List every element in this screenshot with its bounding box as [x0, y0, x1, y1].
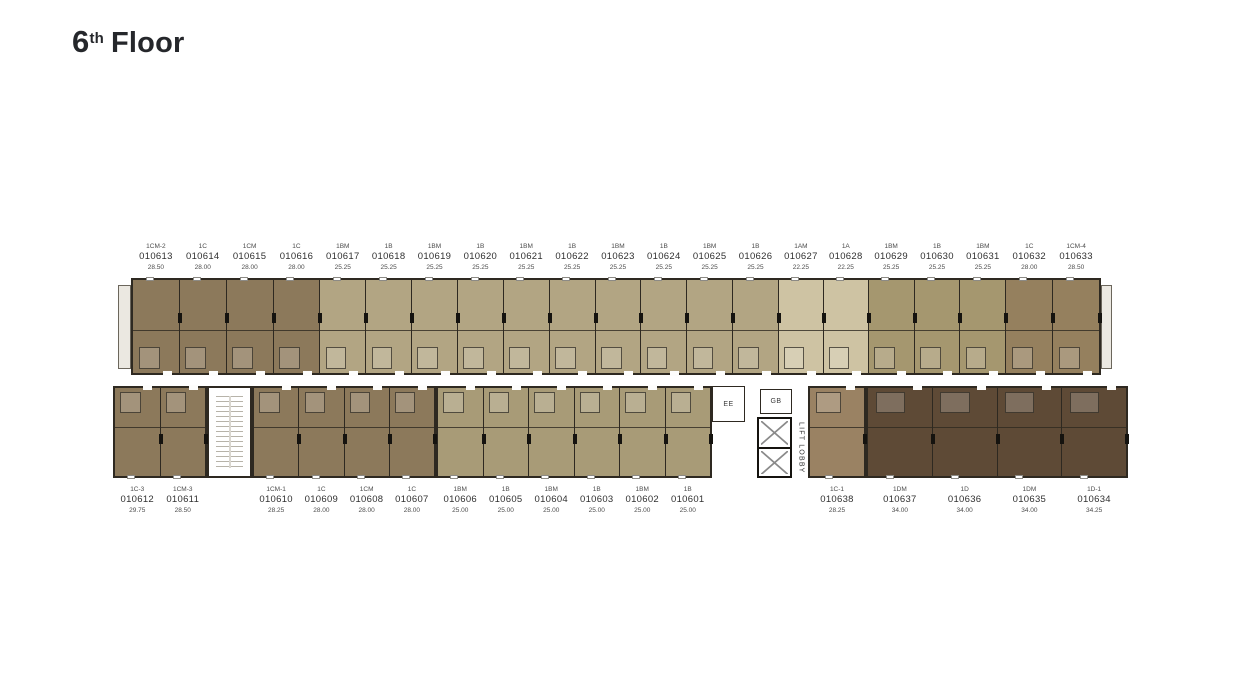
balcony-door-notch	[825, 475, 833, 479]
corridor-door-gap	[648, 385, 657, 390]
unit-bath-block	[372, 347, 393, 369]
corridor-door-gap	[1107, 385, 1116, 390]
corridor-door-gap	[716, 371, 725, 376]
unit-inner-wall	[687, 330, 732, 331]
wall-column-mark	[1004, 313, 1008, 323]
unit-inner-wall	[320, 330, 365, 331]
unit-number: 010616	[280, 251, 314, 263]
unit-bath-block	[580, 392, 600, 413]
unit-number: 010626	[739, 251, 773, 263]
unit-cell-010636: 1D01063634.00	[933, 388, 998, 476]
unit-cell-010607: 1C01060728.00	[390, 388, 434, 476]
unit-inner-wall	[550, 330, 595, 331]
unit-type: 1D	[948, 486, 982, 494]
unit-type: 1B	[464, 243, 498, 251]
unit-type: 1BM	[534, 486, 568, 494]
unit-cell-010602: 1BM01060225.00	[620, 388, 666, 476]
balcony-door-notch	[1080, 475, 1088, 479]
wall-column-mark	[618, 434, 622, 444]
unit-number: 010635	[1013, 494, 1047, 506]
balcony-door-notch	[881, 277, 889, 281]
wall-column-mark	[931, 434, 935, 444]
unit-number: 010636	[948, 494, 982, 506]
wall-column-mark	[527, 434, 531, 444]
unit-label: 1CM-201061328.50	[139, 243, 173, 272]
wall-column-mark	[913, 313, 917, 323]
unit-inner-wall	[458, 330, 503, 331]
unit-area: 34.00	[948, 507, 982, 515]
unit-inner-wall	[620, 427, 665, 428]
unit-cell-010627: 1AM01062722.25	[779, 280, 824, 373]
corridor-door-gap	[943, 371, 952, 376]
unit-number: 010633	[1059, 251, 1093, 263]
unit-label: 1CM01061528.00	[233, 243, 267, 272]
unit-bath-block	[279, 347, 300, 369]
unit-cell-010601: 1B01060125.00	[666, 388, 711, 476]
unit-label: 1CM-101061028.25	[259, 486, 293, 515]
unit-bath-block	[784, 347, 804, 369]
balcony-door-notch	[425, 277, 433, 281]
unit-number: 010611	[166, 494, 199, 506]
unit-type: 1BM	[874, 243, 908, 251]
ee-room-label: EE	[723, 401, 733, 408]
unit-cell-010617: 1BM01061725.25	[320, 280, 366, 373]
unit-bath-block	[1012, 347, 1033, 369]
corridor-door-gap	[762, 371, 771, 376]
unit-cell-010615: 1CM01061528.00	[227, 280, 274, 373]
corridor-door-gap	[1042, 385, 1051, 390]
unit-area: 25.25	[693, 264, 727, 272]
wall-column-mark	[502, 313, 506, 323]
unit-area: 34.25	[1077, 507, 1111, 515]
unit-type: 1BM	[443, 486, 477, 494]
corridor-door-gap	[1083, 371, 1092, 376]
unit-inner-wall	[412, 330, 457, 331]
unit-type: 1AM	[784, 243, 818, 251]
wall-column-mark	[204, 434, 208, 444]
unit-number: 010602	[625, 494, 659, 506]
unit-type: 1BM	[693, 243, 727, 251]
unit-cell-010613: 1CM-201061328.50	[133, 280, 180, 373]
unit-area: 25.25	[464, 264, 498, 272]
corridor-door-gap	[807, 371, 816, 376]
unit-number: 010624	[647, 251, 681, 263]
unit-bath-block	[417, 347, 438, 369]
wall-column-mark	[410, 313, 414, 323]
unit-cell-010616: 1C01061628.00	[274, 280, 321, 373]
corridor-door-gap	[913, 385, 922, 390]
unit-number: 010630	[920, 251, 954, 263]
corridor-door-gap	[395, 371, 404, 376]
corridor-door-gap	[897, 371, 906, 376]
top-wing-right-balcony-edge	[1101, 285, 1112, 369]
lift-shaft-1	[759, 419, 790, 449]
unit-inner-wall	[596, 330, 641, 331]
balcony-door-notch	[450, 475, 458, 479]
unit-cell-010633: 1CM-401063328.50	[1053, 280, 1099, 373]
unit-bath-block	[876, 392, 905, 413]
unit-inner-wall	[666, 427, 711, 428]
balcony-door-notch	[471, 277, 479, 281]
unit-area: 25.25	[372, 264, 406, 272]
unit-inner-wall	[180, 330, 226, 331]
corridor-door-gap	[1036, 371, 1045, 376]
wall-column-mark	[272, 313, 276, 323]
unit-bath-block	[874, 347, 895, 369]
unit-bath-block	[463, 347, 484, 369]
unit-label: 1DM01063534.00	[1013, 486, 1047, 515]
unit-type: 1C	[305, 486, 339, 494]
unit-label: 1A01062822.25	[829, 243, 863, 272]
bottom-wing-mid-west: 1CM-101061028.251C01060928.001CM01060828…	[252, 386, 436, 478]
corridor-door-gap	[557, 385, 566, 390]
unit-cell-010611: 1CM-301061128.50	[161, 388, 206, 476]
unit-inner-wall	[998, 427, 1062, 428]
unit-number: 010605	[489, 494, 523, 506]
corridor-door-gap	[303, 371, 312, 376]
unit-type: 1B	[580, 486, 614, 494]
balcony-door-notch	[127, 475, 135, 479]
unit-bath-block	[601, 347, 622, 369]
unit-cell-010610: 1CM-101061028.25	[254, 388, 299, 476]
unit-number: 010606	[443, 494, 477, 506]
bottom-wing-right: 1DM01063734.001D01063634.001DM01063534.0…	[866, 386, 1128, 478]
top-wing: 1CM-201061328.501C01061428.001CM01061528…	[131, 278, 1101, 375]
unit-cell-010618: 1B01061825.25	[366, 280, 412, 373]
wall-column-mark	[664, 434, 668, 444]
unit-label: 1D01063634.00	[948, 486, 982, 515]
unit-type: 1C-1	[820, 486, 854, 494]
unit-area: 25.25	[920, 264, 954, 272]
wall-column-mark	[996, 434, 1000, 444]
unit-type: 1C-3	[120, 486, 154, 494]
unit-type: 1A	[829, 243, 863, 251]
floor-word: Floor	[111, 27, 185, 59]
unit-number: 010634	[1077, 494, 1111, 506]
unit-bath-block	[940, 392, 969, 413]
unit-label: 1B01063025.25	[920, 243, 954, 272]
corridor-door-gap	[441, 371, 450, 376]
unit-area: 25.25	[509, 264, 543, 272]
corridor-door-gap	[143, 385, 152, 390]
wall-column-mark	[1098, 313, 1102, 323]
unit-cell-010628: 1A01062822.25	[824, 280, 869, 373]
unit-bath-block	[232, 347, 253, 369]
unit-number: 010609	[305, 494, 339, 506]
unit-number: 010617	[326, 251, 360, 263]
balcony-door-notch	[632, 475, 640, 479]
unit-number: 010637	[883, 494, 917, 506]
unit-inner-wall	[133, 330, 179, 331]
unit-type: 1B	[647, 243, 681, 251]
unit-label: 1C01060928.00	[305, 486, 339, 515]
wall-column-mark	[573, 434, 577, 444]
unit-label: 1C01060728.00	[395, 486, 429, 515]
unit-area: 28.50	[1059, 264, 1093, 272]
unit-label: 1BM01062125.25	[509, 243, 543, 272]
wall-column-mark	[297, 434, 301, 444]
unit-bath-block	[350, 392, 370, 413]
unit-type: 1D-1	[1077, 486, 1111, 494]
unit-inner-wall	[733, 330, 778, 331]
unit-type: 1BM	[326, 243, 360, 251]
unit-bath-block	[395, 392, 415, 413]
unit-label: 1BM01062925.25	[874, 243, 908, 272]
unit-number: 010604	[534, 494, 568, 506]
unit-inner-wall	[366, 330, 411, 331]
unit-type: 1CM-2	[139, 243, 173, 251]
unit-inner-wall	[345, 427, 389, 428]
unit-label: 1DM01063734.00	[883, 486, 917, 515]
unit-number: 010619	[418, 251, 452, 263]
unit-area: 25.00	[671, 507, 705, 515]
unit-bath-block	[1070, 392, 1099, 413]
unit-label: 1BM01060225.00	[625, 486, 659, 515]
unit-inner-wall	[504, 330, 549, 331]
corridor-door-gap	[670, 371, 679, 376]
wall-column-mark	[1125, 434, 1129, 444]
balcony-door-notch	[746, 277, 754, 281]
balcony-door-notch	[193, 277, 201, 281]
unit-bath-block	[1059, 347, 1080, 369]
unit-label: 1BM01061725.25	[326, 243, 360, 272]
unit-area: 25.25	[739, 264, 773, 272]
unit-type: 1B	[920, 243, 954, 251]
unit-bath-block	[443, 392, 463, 413]
unit-number: 010603	[580, 494, 614, 506]
unit-bath-block	[509, 347, 530, 369]
unit-type: 1BM	[625, 486, 659, 494]
corridor-door-gap	[846, 385, 855, 390]
unit-number: 010601	[671, 494, 705, 506]
unit-number: 010628	[829, 251, 863, 263]
unit-cell-010638: 1C-101063828.25	[810, 388, 864, 476]
lift-shafts	[757, 417, 792, 478]
unit-label: 1CM-301061128.50	[166, 486, 199, 515]
corridor-door-gap	[466, 385, 475, 390]
balcony-door-notch	[240, 277, 248, 281]
unit-area: 34.00	[883, 507, 917, 515]
balcony-door-notch	[357, 475, 365, 479]
unit-number: 010607	[395, 494, 429, 506]
unit-bath-block	[305, 392, 325, 413]
unit-label: 1B01060325.00	[580, 486, 614, 515]
unit-area: 25.25	[601, 264, 635, 272]
wall-column-mark	[318, 313, 322, 323]
unit-area: 28.00	[186, 264, 220, 272]
balcony-door-notch	[1015, 475, 1023, 479]
unit-number: 010638	[820, 494, 854, 506]
unit-area: 25.25	[874, 264, 908, 272]
unit-area: 28.00	[1012, 264, 1046, 272]
unit-area: 28.50	[166, 507, 199, 515]
wall-column-mark	[594, 313, 598, 323]
balcony-door-notch	[608, 277, 616, 281]
unit-number: 010620	[464, 251, 498, 263]
corridor-door-gap	[624, 371, 633, 376]
unit-cell-010626: 1B01062625.25	[733, 280, 779, 373]
unit-inner-wall	[227, 330, 273, 331]
unit-bath-block	[555, 347, 576, 369]
wall-column-mark	[225, 313, 229, 323]
unit-label: 1C-101063828.25	[820, 486, 854, 515]
unit-cell-010623: 1BM01062325.25	[596, 280, 642, 373]
unit-type: 1CM	[350, 486, 384, 494]
unit-number: 010629	[874, 251, 908, 263]
wall-column-mark	[867, 313, 871, 323]
unit-inner-wall	[161, 427, 206, 428]
unit-cell-010604: 1BM01060425.00	[529, 388, 575, 476]
unit-cell-010619: 1BM01061925.25	[412, 280, 458, 373]
unit-number: 010625	[693, 251, 727, 263]
unit-number: 010615	[233, 251, 267, 263]
unit-area: 25.25	[647, 264, 681, 272]
lift-shaft-x-icon	[761, 421, 788, 445]
unit-bath-block	[966, 347, 987, 369]
unit-number: 010621	[509, 251, 543, 263]
unit-area: 28.00	[395, 507, 429, 515]
balcony-door-notch	[541, 475, 549, 479]
unit-area: 25.25	[418, 264, 452, 272]
gb-room-label: GB	[770, 398, 781, 405]
unit-label: 1B01062425.25	[647, 243, 681, 272]
unit-inner-wall	[484, 427, 529, 428]
unit-type: 1BM	[418, 243, 452, 251]
unit-inner-wall	[115, 427, 160, 428]
stairwell	[207, 386, 252, 478]
balcony-door-notch	[654, 277, 662, 281]
unit-inner-wall	[869, 330, 914, 331]
balcony-door-notch	[700, 277, 708, 281]
unit-area: 28.25	[259, 507, 293, 515]
balcony-door-notch	[927, 277, 935, 281]
balcony-door-notch	[516, 277, 524, 281]
balcony-door-notch	[379, 277, 387, 281]
unit-number: 010613	[139, 251, 173, 263]
top-wing-left-balcony-edge	[118, 285, 131, 369]
gb-room: GB	[760, 389, 792, 414]
unit-label: 1CM01060828.00	[350, 486, 384, 515]
unit-number: 010632	[1012, 251, 1046, 263]
unit-cell-010625: 1BM01062525.25	[687, 280, 733, 373]
wall-column-mark	[1051, 313, 1055, 323]
corridor-door-gap	[327, 385, 336, 390]
unit-type: 1DM	[883, 486, 917, 494]
wall-column-mark	[364, 313, 368, 323]
unit-cell-010621: 1BM01062125.25	[504, 280, 550, 373]
corridor-door-gap	[349, 371, 358, 376]
balcony-door-notch	[286, 277, 294, 281]
unit-cell-010609: 1C01060928.00	[299, 388, 344, 476]
unit-bath-block	[738, 347, 759, 369]
unit-cell-010622: 1B01062225.25	[550, 280, 596, 373]
unit-inner-wall	[1062, 427, 1126, 428]
unit-inner-wall	[779, 330, 823, 331]
unit-bath-block	[139, 347, 160, 369]
unit-type: 1C	[1012, 243, 1046, 251]
balcony-door-notch	[973, 277, 981, 281]
unit-area: 25.25	[326, 264, 360, 272]
unit-area: 25.25	[966, 264, 1000, 272]
unit-label: 1C-301061229.75	[120, 486, 154, 515]
unit-bath-block	[647, 347, 668, 369]
unit-label: 1B01061825.25	[372, 243, 406, 272]
balcony-door-notch	[791, 277, 799, 281]
unit-type: 1CM-4	[1059, 243, 1093, 251]
unit-cell-010637: 1DM01063734.00	[868, 388, 933, 476]
unit-cell-010612: 1C-301061229.75	[115, 388, 161, 476]
unit-inner-wall	[529, 427, 574, 428]
corridor-door-gap	[256, 371, 265, 376]
unit-label: 1B01062025.25	[464, 243, 498, 272]
balcony-door-notch	[678, 475, 686, 479]
unit-number: 010610	[259, 494, 293, 506]
unit-area: 22.25	[784, 264, 818, 272]
unit-inner-wall	[1053, 330, 1099, 331]
unit-type: 1CM-3	[166, 486, 199, 494]
unit-bath-block	[534, 392, 554, 413]
balcony-door-notch	[1019, 277, 1027, 281]
balcony-door-notch	[173, 475, 181, 479]
unit-label: 1B01062625.25	[739, 243, 773, 272]
unit-label: 1BM01060425.00	[534, 486, 568, 515]
balcony-door-notch	[836, 277, 844, 281]
unit-bath-block	[671, 392, 691, 413]
unit-label: 1B01062225.25	[555, 243, 589, 272]
unit-bath-block	[693, 347, 714, 369]
unit-inner-wall	[960, 330, 1005, 331]
unit-label: 1BM01060625.00	[443, 486, 477, 515]
unit-label: 1C01061428.00	[186, 243, 220, 272]
unit-bath-block	[489, 392, 509, 413]
wall-column-mark	[863, 434, 867, 444]
unit-type: 1C	[280, 243, 314, 251]
balcony-door-notch	[266, 475, 274, 479]
unit-area: 22.25	[829, 264, 863, 272]
balcony-door-notch	[1066, 277, 1074, 281]
unit-area: 28.00	[305, 507, 339, 515]
wall-column-mark	[433, 434, 437, 444]
unit-cell-010605: 1B01060525.00	[484, 388, 530, 476]
unit-inner-wall	[824, 330, 868, 331]
unit-label: 1C01061628.00	[280, 243, 314, 272]
corridor-door-gap	[209, 371, 218, 376]
unit-inner-wall	[274, 330, 320, 331]
wall-column-mark	[159, 434, 163, 444]
unit-number: 010627	[784, 251, 818, 263]
unit-label: 1D-101063434.25	[1077, 486, 1111, 515]
corridor-door-gap	[578, 371, 587, 376]
wall-column-mark	[685, 313, 689, 323]
unit-area: 29.75	[120, 507, 154, 515]
unit-label: 1BM01062325.25	[601, 243, 635, 272]
balcony-door-notch	[886, 475, 894, 479]
unit-number: 010608	[350, 494, 384, 506]
balcony-door-notch	[562, 277, 570, 281]
corridor-door-gap	[418, 385, 427, 390]
unit-label: 1C01063228.00	[1012, 243, 1046, 272]
unit-type: 1B	[489, 486, 523, 494]
wall-column-mark	[958, 313, 962, 323]
unit-type: 1C	[186, 243, 220, 251]
wall-column-mark	[1060, 434, 1064, 444]
unit-bath-block	[829, 347, 849, 369]
unit-inner-wall	[575, 427, 620, 428]
unit-cell-010608: 1CM01060828.00	[345, 388, 390, 476]
ee-room: EE	[712, 386, 745, 422]
corridor-door-gap	[977, 385, 986, 390]
balcony-door-notch	[402, 475, 410, 479]
